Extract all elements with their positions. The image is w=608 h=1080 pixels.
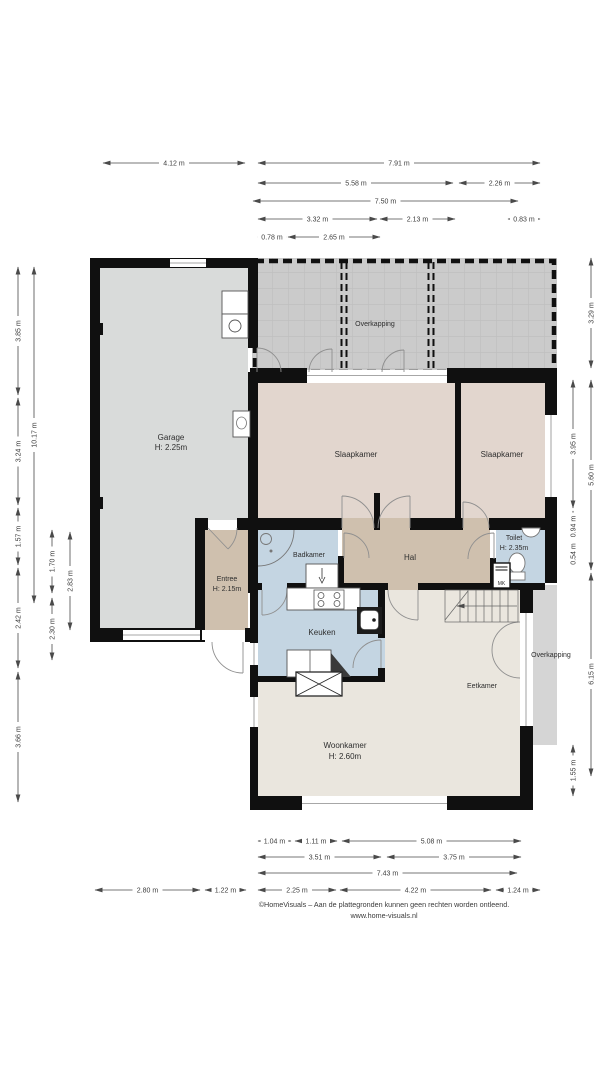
- svg-text:2.42 m: 2.42 m: [16, 607, 23, 629]
- woonkamer-label: Woonkamer: [324, 741, 367, 750]
- svg-text:5.08 m: 5.08 m: [421, 839, 443, 846]
- svg-text:3.32 m: 3.32 m: [307, 217, 329, 224]
- dim-left-1: 3.85 m: [14, 267, 23, 395]
- washer-icon: [222, 314, 248, 338]
- door-arc: [212, 642, 243, 673]
- svg-text:2.83 m: 2.83 m: [68, 570, 75, 592]
- keuken-label: Keuken: [308, 628, 335, 637]
- svg-text:3.75 m: 3.75 m: [443, 855, 465, 862]
- dim-right-4: 0.54 m: [569, 540, 578, 568]
- overkapping-right-label: Overkapping: [531, 652, 571, 659]
- dim-left-3: 1.57 m: [14, 508, 23, 565]
- dim-bottom-2: 1.11 m: [295, 837, 337, 846]
- wall: [248, 372, 258, 522]
- dim-bottom-4: 3.51 m: [258, 853, 381, 862]
- stove-icon: [314, 590, 344, 609]
- svg-text:0.83 m: 0.83 m: [513, 217, 535, 224]
- door-threshold: [202, 630, 245, 640]
- dimensions-bottom: 1.04 m 1.11 m 5.08 m 3.51 m 3.75 m 7.43 …: [95, 837, 540, 895]
- svg-text:1.24 m: 1.24 m: [507, 888, 529, 895]
- dim-bottom-1: 1.04 m: [258, 837, 291, 846]
- wall: [250, 665, 258, 697]
- dim-top-7: 2.13 m: [380, 215, 455, 224]
- dim-bottom-11: 1.24 m: [496, 886, 540, 895]
- svg-text:7.91 m: 7.91 m: [388, 161, 410, 168]
- wall: [195, 518, 208, 530]
- dim-right-5: 5.60 m: [587, 380, 596, 570]
- dryer-icon: [222, 291, 248, 314]
- faucet-icon: [372, 618, 376, 622]
- svg-text:0.78 m: 0.78 m: [261, 235, 283, 242]
- wall: [248, 258, 258, 348]
- dim-top-3: 5.58 m: [258, 179, 453, 188]
- svg-text:4.22 m: 4.22 m: [405, 888, 427, 895]
- svg-text:1.11 m: 1.11 m: [306, 839, 327, 846]
- svg-text:3.95 m: 3.95 m: [571, 433, 578, 455]
- dim-right-2: 3.95 m: [569, 380, 578, 508]
- svg-text:3.85 m: 3.85 m: [16, 320, 23, 342]
- footer-website: www.home-visuals.nl: [349, 911, 418, 920]
- dim-left-4: 2.42 m: [14, 568, 23, 668]
- toilet-bowl-icon: [509, 553, 525, 573]
- dim-right-7: 1.55 m: [569, 745, 578, 796]
- wall: [374, 493, 380, 530]
- wall: [410, 518, 463, 530]
- wall: [545, 530, 557, 583]
- svg-text:0.94 m: 0.94 m: [571, 516, 578, 538]
- svg-text:5.58 m: 5.58 m: [345, 181, 367, 188]
- garage-height-label: H: 2.25m: [155, 443, 188, 452]
- dim-left-6: 10.17 m: [30, 267, 39, 603]
- dim-left-5: 3.66 m: [14, 672, 23, 802]
- slaapkamer-left-label: Slaapkamer: [335, 450, 378, 459]
- dim-bottom-7: 2.80 m: [95, 886, 200, 895]
- svg-text:1.04 m: 1.04 m: [264, 839, 286, 846]
- wall: [250, 518, 342, 530]
- svg-text:1.70 m: 1.70 m: [50, 551, 57, 573]
- toilet-label: Toilet: [506, 535, 522, 542]
- svg-text:6.15 m: 6.15 m: [589, 663, 596, 685]
- wall: [250, 583, 262, 590]
- dimensions-right: 3.29 m 3.95 m 0.94 m 0.54 m 5.60 m 6.15 …: [569, 258, 596, 796]
- svg-text:1.22 m: 1.22 m: [215, 888, 237, 895]
- wall: [545, 368, 557, 415]
- overkapping-top-grid: [252, 258, 557, 375]
- svg-text:0.54 m: 0.54 m: [571, 543, 578, 565]
- dimensions-top: 4.12 m 7.91 m 5.58 m 2.26 m 7.50 m 3.32 …: [103, 159, 540, 242]
- dim-left-9: 2.83 m: [66, 532, 75, 630]
- svg-text:3.29 m: 3.29 m: [589, 302, 596, 324]
- dim-top-1: 4.12 m: [103, 159, 245, 168]
- svg-text:2.13 m: 2.13 m: [407, 217, 429, 224]
- dim-top-5: 7.50 m: [253, 197, 518, 206]
- floor-plan: MK Garage H: 2.25m Slaapkamer Slaapkamer…: [0, 0, 608, 1080]
- dim-right-1: 3.29 m: [587, 258, 596, 368]
- svg-text:5.60 m: 5.60 m: [589, 464, 596, 486]
- dim-right-3: 0.94 m: [569, 511, 578, 542]
- dim-top-9: 0.78 m: [258, 233, 286, 242]
- svg-text:2.80 m: 2.80 m: [137, 888, 159, 895]
- dim-bottom-5: 3.75 m: [387, 853, 521, 862]
- wall: [250, 590, 258, 643]
- entree-height-label: H: 2.15m: [213, 586, 242, 593]
- entree-label: Entree: [217, 576, 238, 583]
- svg-text:2.30 m: 2.30 m: [50, 618, 57, 640]
- dim-top-2: 7.91 m: [258, 159, 540, 168]
- svg-text:3.51 m: 3.51 m: [309, 855, 331, 862]
- dim-left-7: 1.70 m: [48, 530, 57, 593]
- overkapping-top-label: Overkapping: [355, 321, 395, 328]
- footer-disclaimer: ©HomeVisuals – Aan de plattegronden kunn…: [259, 900, 510, 909]
- dim-right-6: 6.15 m: [587, 573, 596, 776]
- svg-text:2.26 m: 2.26 m: [489, 181, 511, 188]
- dim-bottom-6: 7.43 m: [258, 869, 517, 878]
- dim-bottom-8: 1.22 m: [205, 886, 246, 895]
- hal-label: Hal: [404, 553, 416, 562]
- overkapping-right-floor: [533, 585, 557, 745]
- svg-text:1.57 m: 1.57 m: [16, 526, 23, 548]
- garage-basin-bowl: [237, 417, 247, 429]
- footer: ©HomeVisuals – Aan de plattegronden kunn…: [259, 900, 510, 920]
- svg-text:3.66 m: 3.66 m: [16, 726, 23, 748]
- dim-top-4: 2.26 m: [459, 179, 540, 188]
- svg-text:3.24 m: 3.24 m: [16, 441, 23, 463]
- garage-label: Garage: [158, 433, 185, 442]
- wall: [90, 258, 100, 642]
- shower-drain-icon: [270, 550, 273, 553]
- wall: [447, 368, 557, 383]
- dim-top-6: 3.32 m: [258, 215, 377, 224]
- svg-text:2.65 m: 2.65 m: [323, 235, 345, 242]
- wall: [195, 518, 205, 642]
- slaapkamer-right-label: Slaapkamer: [481, 450, 524, 459]
- woonkamer-height-label: H: 2.60m: [329, 752, 362, 761]
- svg-text:7.43 m: 7.43 m: [377, 871, 399, 878]
- wall: [90, 497, 103, 509]
- wall: [90, 323, 103, 335]
- wall: [455, 383, 461, 523]
- svg-text:10.17 m: 10.17 m: [32, 422, 39, 447]
- badkamer-label: Badkamer: [293, 552, 326, 559]
- wall: [250, 796, 302, 810]
- toilet-height-label: H: 2.35m: [500, 545, 529, 552]
- dim-left-8: 2.30 m: [48, 598, 57, 660]
- dim-left-2: 3.24 m: [14, 398, 23, 505]
- wall: [520, 726, 533, 810]
- floorplan-canvas: MK Garage H: 2.25m Slaapkamer Slaapkamer…: [0, 0, 608, 1080]
- eetkamer-label: Eetkamer: [467, 683, 498, 690]
- svg-text:7.50 m: 7.50 m: [375, 199, 397, 206]
- svg-text:1.55 m: 1.55 m: [571, 760, 578, 782]
- dimensions-left: 3.85 m 3.24 m 1.57 m 2.42 m 3.66 m 10.17…: [14, 267, 75, 802]
- svg-text:4.12 m: 4.12 m: [163, 161, 185, 168]
- dim-bottom-10: 4.22 m: [340, 886, 491, 895]
- wall: [250, 368, 307, 383]
- dim-bottom-3: 5.08 m: [342, 837, 521, 846]
- wall: [520, 583, 533, 613]
- dim-top-10: 2.65 m: [288, 233, 380, 242]
- meterkast-label: MK: [498, 581, 506, 587]
- dim-top-8: 0.83 m: [508, 215, 540, 224]
- toilet-tank-icon: [509, 572, 525, 580]
- dim-bottom-9: 2.25 m: [258, 886, 336, 895]
- svg-text:2.25 m: 2.25 m: [286, 888, 308, 895]
